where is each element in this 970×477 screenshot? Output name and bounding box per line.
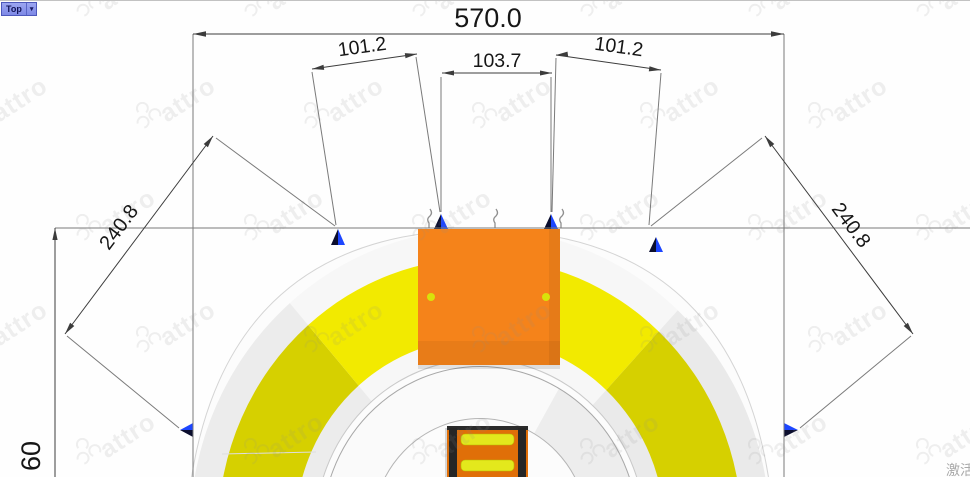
dim-left-diagonal-label[interactable]: 240.8 xyxy=(95,201,143,254)
arrowhead xyxy=(312,65,324,70)
extension-lines xyxy=(55,34,970,477)
dim-left-diagonal[interactable]: 240.8 xyxy=(65,136,213,334)
dim-overall-width-label[interactable]: 570.0 xyxy=(454,3,522,33)
extension-line xyxy=(216,138,335,226)
arrowhead xyxy=(405,53,417,58)
arrowhead xyxy=(204,136,213,147)
arrowhead xyxy=(540,71,552,76)
extension-line xyxy=(800,336,911,428)
dimension-annotations: 570.0 101.2 103.7 101.2 240. xyxy=(0,1,970,477)
dim-center-gap[interactable]: 103.7 xyxy=(442,50,552,76)
extension-line xyxy=(649,73,661,225)
view-orientation-label[interactable]: Top xyxy=(2,4,26,14)
arrowhead xyxy=(65,323,74,334)
dim-side-height[interactable]: 60 xyxy=(16,228,58,477)
dim-right-gap-label[interactable]: 101.2 xyxy=(593,33,644,62)
dimension-line xyxy=(65,136,213,334)
extension-line xyxy=(552,58,556,212)
dim-left-gap[interactable]: 101.2 xyxy=(312,33,417,70)
dim-right-gap[interactable]: 101.2 xyxy=(556,33,661,72)
dimension-line xyxy=(556,55,661,70)
dimension-line xyxy=(765,136,913,334)
dim-left-gap-label[interactable]: 101.2 xyxy=(336,33,387,62)
dim-right-diagonal-label[interactable]: 240.8 xyxy=(827,199,875,252)
extension-line xyxy=(416,57,440,212)
dim-side-height-label[interactable]: 60 xyxy=(16,441,46,471)
arrowhead xyxy=(649,66,661,71)
dim-right-diagonal[interactable]: 240.8 xyxy=(765,136,913,334)
view-orientation-button[interactable]: Top ▾ xyxy=(1,2,37,16)
activation-watermark: 激活 xyxy=(946,460,970,477)
arrowhead xyxy=(52,228,57,240)
extension-line xyxy=(67,336,179,428)
arrowhead xyxy=(193,31,206,36)
arrowhead xyxy=(904,323,913,334)
extension-line xyxy=(651,138,762,226)
cad-viewport: attroattroattroattroattroattroattroattro… xyxy=(0,0,970,477)
arrowhead xyxy=(765,136,774,147)
dim-center-gap-label[interactable]: 103.7 xyxy=(473,50,522,72)
chevron-down-icon[interactable]: ▾ xyxy=(27,5,37,13)
extension-line xyxy=(312,72,336,225)
arrowhead xyxy=(442,71,454,76)
dim-overall-width[interactable]: 570.0 xyxy=(193,3,784,37)
arrowhead xyxy=(771,31,784,36)
